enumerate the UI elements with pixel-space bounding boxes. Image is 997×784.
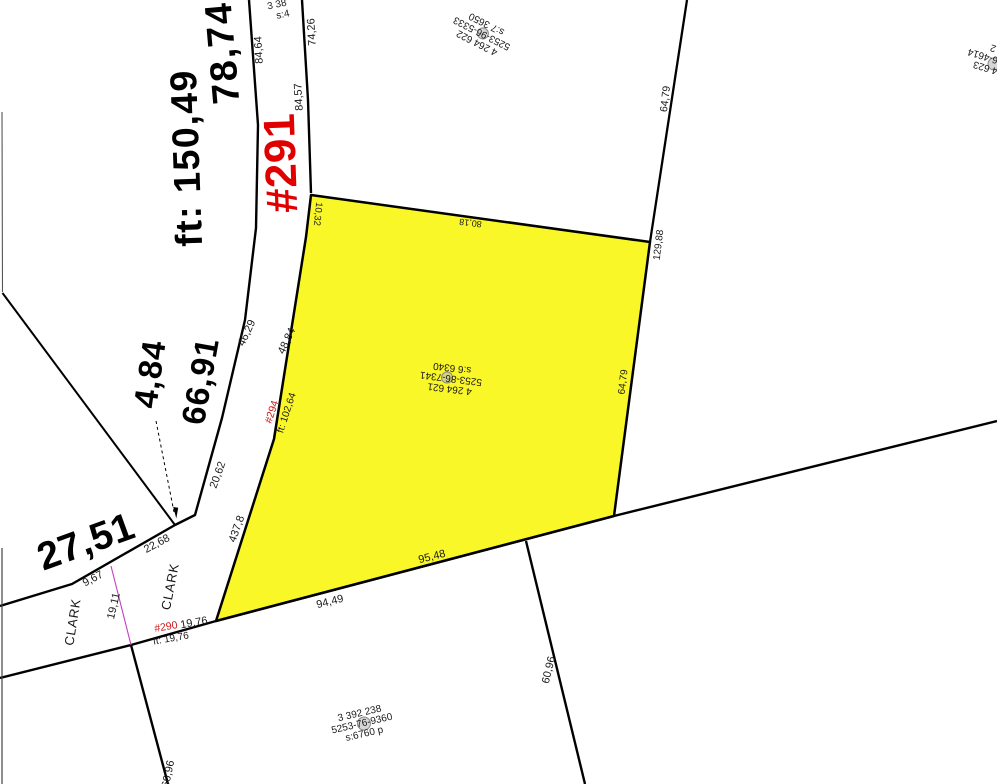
svg-text:78,74: 78,74 [198,0,249,106]
svg-text:ft: 150,49: ft: 150,49 [162,69,210,248]
svg-text:74,26: 74,26 [305,18,318,46]
svg-text:84,64: 84,64 [252,36,265,64]
svg-text:84,57: 84,57 [292,83,305,111]
svg-text:#291: #291 [255,112,307,214]
